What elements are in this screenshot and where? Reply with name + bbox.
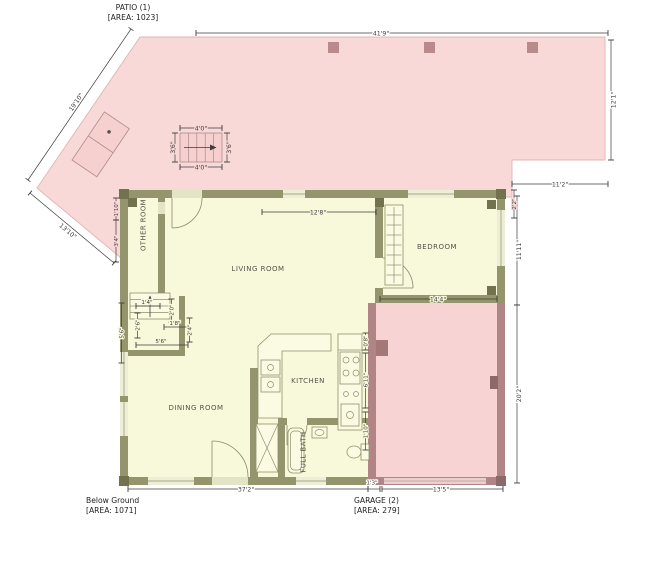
garage-wall-post (490, 376, 498, 389)
window (120, 402, 128, 436)
room-label-full-bath: FULL BATH (299, 431, 307, 472)
chimney-block (376, 340, 388, 356)
bath-sink-icon (312, 427, 327, 438)
dim-label-stair-2: 2'0" (170, 304, 176, 316)
dim-label-patio-right: 12'1" (611, 92, 618, 109)
bedroom-closet (385, 205, 403, 285)
patio-stairs-icon (180, 133, 222, 162)
dim-label-garage-width: 13'5" (433, 486, 450, 493)
floor-area: [AREA: 1071] (86, 506, 137, 515)
garage-title: GARAGE (2) (354, 496, 399, 505)
door-opening (212, 477, 248, 485)
window (283, 190, 305, 198)
window (408, 190, 454, 198)
dim-label-garage-height: 20'2" (516, 386, 523, 403)
dim-label-stair-3: 2'6" (136, 319, 142, 331)
dim-label-stair-5: 2'4" (188, 324, 194, 336)
dim-label-kitchen-wall-upper: 0'8" (364, 335, 370, 347)
dim-label-living-top: 12'8" (310, 209, 327, 216)
window (296, 477, 326, 485)
dim-label-west-lower: 3'4" (114, 235, 120, 247)
patio-area: [AREA: 1023] (108, 13, 159, 22)
dim-label-stair-4: 1'8" (169, 321, 181, 327)
patio-column (424, 42, 435, 53)
room-label-kitchen: KITCHEN (291, 377, 325, 385)
stove-icon (340, 352, 360, 384)
dim-label-notch-height: 2'2" (512, 198, 518, 210)
dim-label-west-upper: 1'10" (114, 201, 120, 216)
dim-label-patio-top: 41'9" (373, 31, 390, 38)
below-ground-region (119, 189, 506, 486)
dim-label-patio-diagonal-lower: 13'10" (58, 222, 78, 240)
dim-label-floor-bottom: 37'2" (238, 486, 255, 493)
floor-plan-page: 41'9" 12'1" 19'10" 13'10" 11'2" 2'2" 4'0… (0, 0, 650, 571)
garage-area: [AREA: 279] (354, 506, 400, 515)
dim-label-bedroom-width: 14'4" (430, 296, 447, 303)
floor-title: Below Ground (86, 496, 139, 505)
sink-icon (261, 360, 280, 375)
room-label-bedroom: BEDROOM (417, 243, 457, 251)
door-opening (172, 190, 202, 198)
patio-column (328, 42, 339, 53)
dim-label-stairs-right: 3'6" (226, 141, 233, 154)
patio-title: PATIO (1) (116, 3, 151, 12)
dim-label-stairs-bottom: 4'0" (195, 164, 208, 171)
dim-label-kitchen-wall-lower: 1'10" (364, 423, 370, 438)
room-label-other-room: OTHER ROOM (139, 199, 147, 251)
dim-label-stairs-left: 3'6" (170, 141, 177, 154)
door-opening (158, 202, 165, 214)
garage-door (384, 478, 486, 484)
dishwasher-icon (341, 404, 359, 426)
sink-icon (261, 377, 280, 392)
dim-label-step-width: 1'3" (366, 481, 378, 487)
dim-label-stair-1: 1'4" (141, 300, 153, 306)
room-label-living-room: LIVING ROOM (231, 265, 284, 273)
dim-label-stair-6: 5'6" (155, 339, 167, 345)
patio-column (527, 42, 538, 53)
dim-label-kitchen-wall-mid: 6'11" (364, 372, 370, 387)
window (148, 477, 194, 485)
floor-plan-drawing: 41'9" 12'1" 19'10" 13'10" 11'2" 2'2" 4'0… (0, 0, 650, 571)
garage-surface (376, 303, 497, 477)
dim-label-stairs-top: 4'0" (195, 125, 208, 132)
dim-label-patio-diagonal-upper: 19'10" (68, 92, 85, 113)
dim-label-notch-width: 11'2" (552, 182, 569, 189)
dim-label-stair-7: 5'6" (120, 327, 126, 339)
window (497, 210, 505, 266)
utility-closet-icon (256, 424, 278, 472)
room-label-dining-room: DINING ROOM (168, 404, 223, 412)
dim-label-bedroom-height: 11'11" (516, 240, 523, 260)
